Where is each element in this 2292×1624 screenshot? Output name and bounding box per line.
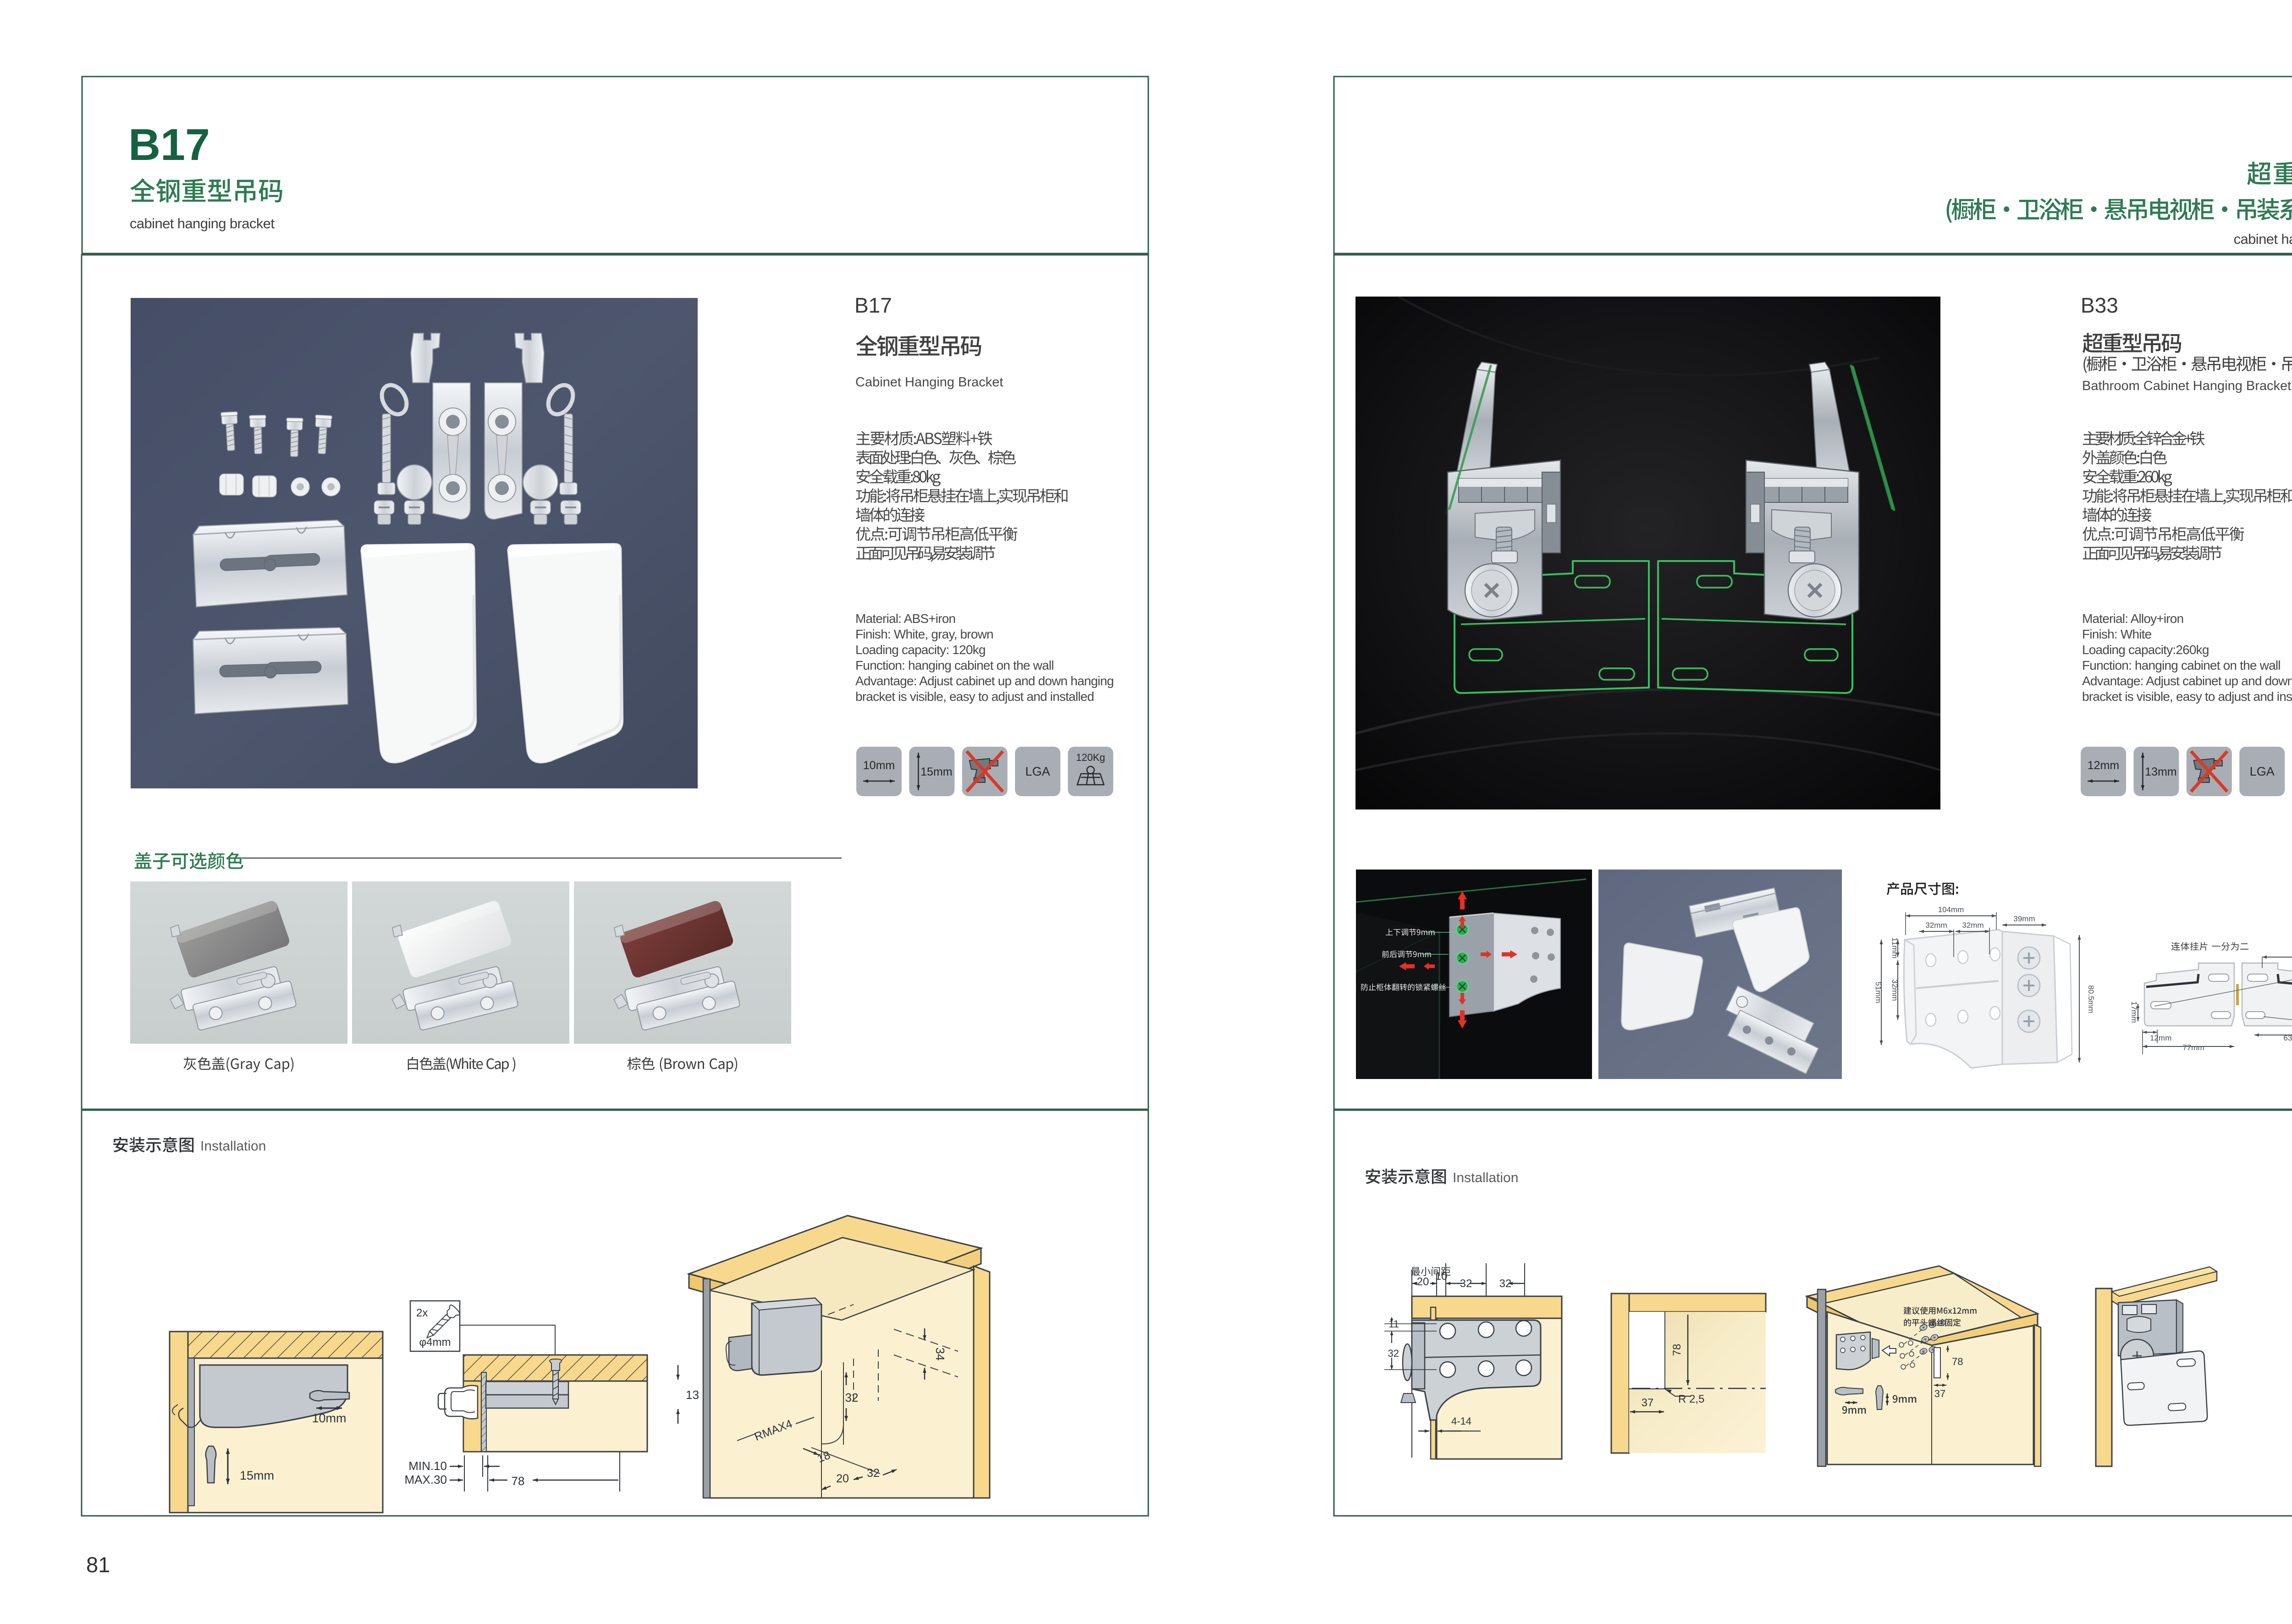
svg-text:B17: B17 [128,120,210,170]
svg-text:12mm: 12mm [2088,759,2119,772]
svg-text:φ4mm: φ4mm [419,1336,451,1349]
svg-text:Installation: Installation [1453,1170,1518,1185]
svg-text:Cabinet Hanging Bracket: Cabinet Hanging Bracket [855,375,1003,390]
svg-text:120Kg: 120Kg [1076,752,1105,763]
svg-text:cabinet hanging bracket: cabinet hanging bracket [130,215,275,231]
svg-text:15mm: 15mm [920,765,952,778]
svg-text:32mm: 32mm [1925,921,1947,930]
svg-text:B17: B17 [854,293,892,317]
svg-text:Loading capacity:260kg: Loading capacity:260kg [2082,643,2209,657]
svg-text:34: 34 [933,1348,947,1361]
svg-text:37: 37 [1934,1388,1945,1399]
svg-text:bracket is visible, easy to ad: bracket is visible, easy to adjust and i… [855,689,1094,704]
svg-text:Material: Alloy+iron: Material: Alloy+iron [2082,611,2183,626]
svg-text:51mm: 51mm [1874,981,1883,1003]
svg-text:32mm: 32mm [1962,921,1983,930]
svg-text:11mm: 11mm [1890,937,1899,958]
svg-text:78: 78 [512,1474,525,1488]
svg-text:Material: ABS+iron: Material: ABS+iron [855,611,955,626]
svg-text:MIN.10: MIN.10 [408,1459,447,1473]
svg-text:Installation: Installation [200,1139,266,1154]
svg-text:MAX.30: MAX.30 [405,1473,447,1486]
svg-text:17mm: 17mm [2130,1001,2138,1023]
svg-text:12mm: 12mm [2150,1034,2171,1042]
svg-text:32: 32 [845,1391,859,1404]
svg-text:80.5mm: 80.5mm [2087,985,2095,1013]
svg-text:13: 13 [686,1388,699,1402]
svg-text:20: 20 [836,1472,849,1485]
svg-text:B33: B33 [2081,293,2118,317]
svg-text:Bathroom Cabinet Hanging Brack: Bathroom Cabinet Hanging Bracket [2082,379,2291,393]
svg-text:Advantage: Adjust cabinet up a: Advantage: Adjust cabinet up and down ha… [855,674,1113,688]
svg-text:77mm: 77mm [2182,1043,2204,1052]
svg-text:15mm: 15mm [240,1469,274,1482]
svg-text:78: 78 [1671,1344,1683,1356]
svg-text:LGA: LGA [2250,765,2275,778]
svg-text:Finish: White, gray, brown: Finish: White, gray, brown [855,627,993,641]
svg-text:Finish: White: Finish: White [2082,627,2152,641]
svg-text:Function: hanging cabinet on t: Function: hanging cabinet on the wall [2082,658,2281,672]
svg-text:4-14: 4-14 [1451,1415,1471,1427]
svg-text:104mm: 104mm [1938,905,1964,914]
svg-text:Function: hanging cabinet on t: Function: hanging cabinet on the wall [855,658,1054,672]
svg-text:13mm: 13mm [2145,765,2176,778]
svg-text:10mm: 10mm [312,1411,346,1425]
svg-text:32: 32 [867,1467,880,1480]
svg-text:81: 81 [86,1552,110,1577]
svg-text:cabinet hanging bracket: cabinet hanging bracket [2234,231,2292,247]
svg-text:20: 20 [1417,1276,1429,1288]
svg-text:78: 78 [1952,1356,1963,1367]
svg-text:2x: 2x [416,1307,428,1319]
svg-text:bracket is visible, easy to ad: bracket is visible, easy to adjust and i… [2082,689,2292,704]
svg-text:Advantage: Adjust cabinet up a: Advantage: Adjust cabinet up and down ha… [2082,674,2292,688]
svg-text:32: 32 [1388,1348,1399,1359]
svg-text:10mm: 10mm [863,759,895,772]
svg-text:Loading capacity: 120kg: Loading capacity: 120kg [855,643,986,657]
svg-text:32mm: 32mm [1890,979,1899,1001]
svg-text:R 2,5: R 2,5 [1678,1393,1704,1405]
svg-text:37: 37 [1642,1397,1654,1409]
svg-text:LGA: LGA [1025,765,1050,778]
svg-text:39mm: 39mm [2013,914,2035,923]
